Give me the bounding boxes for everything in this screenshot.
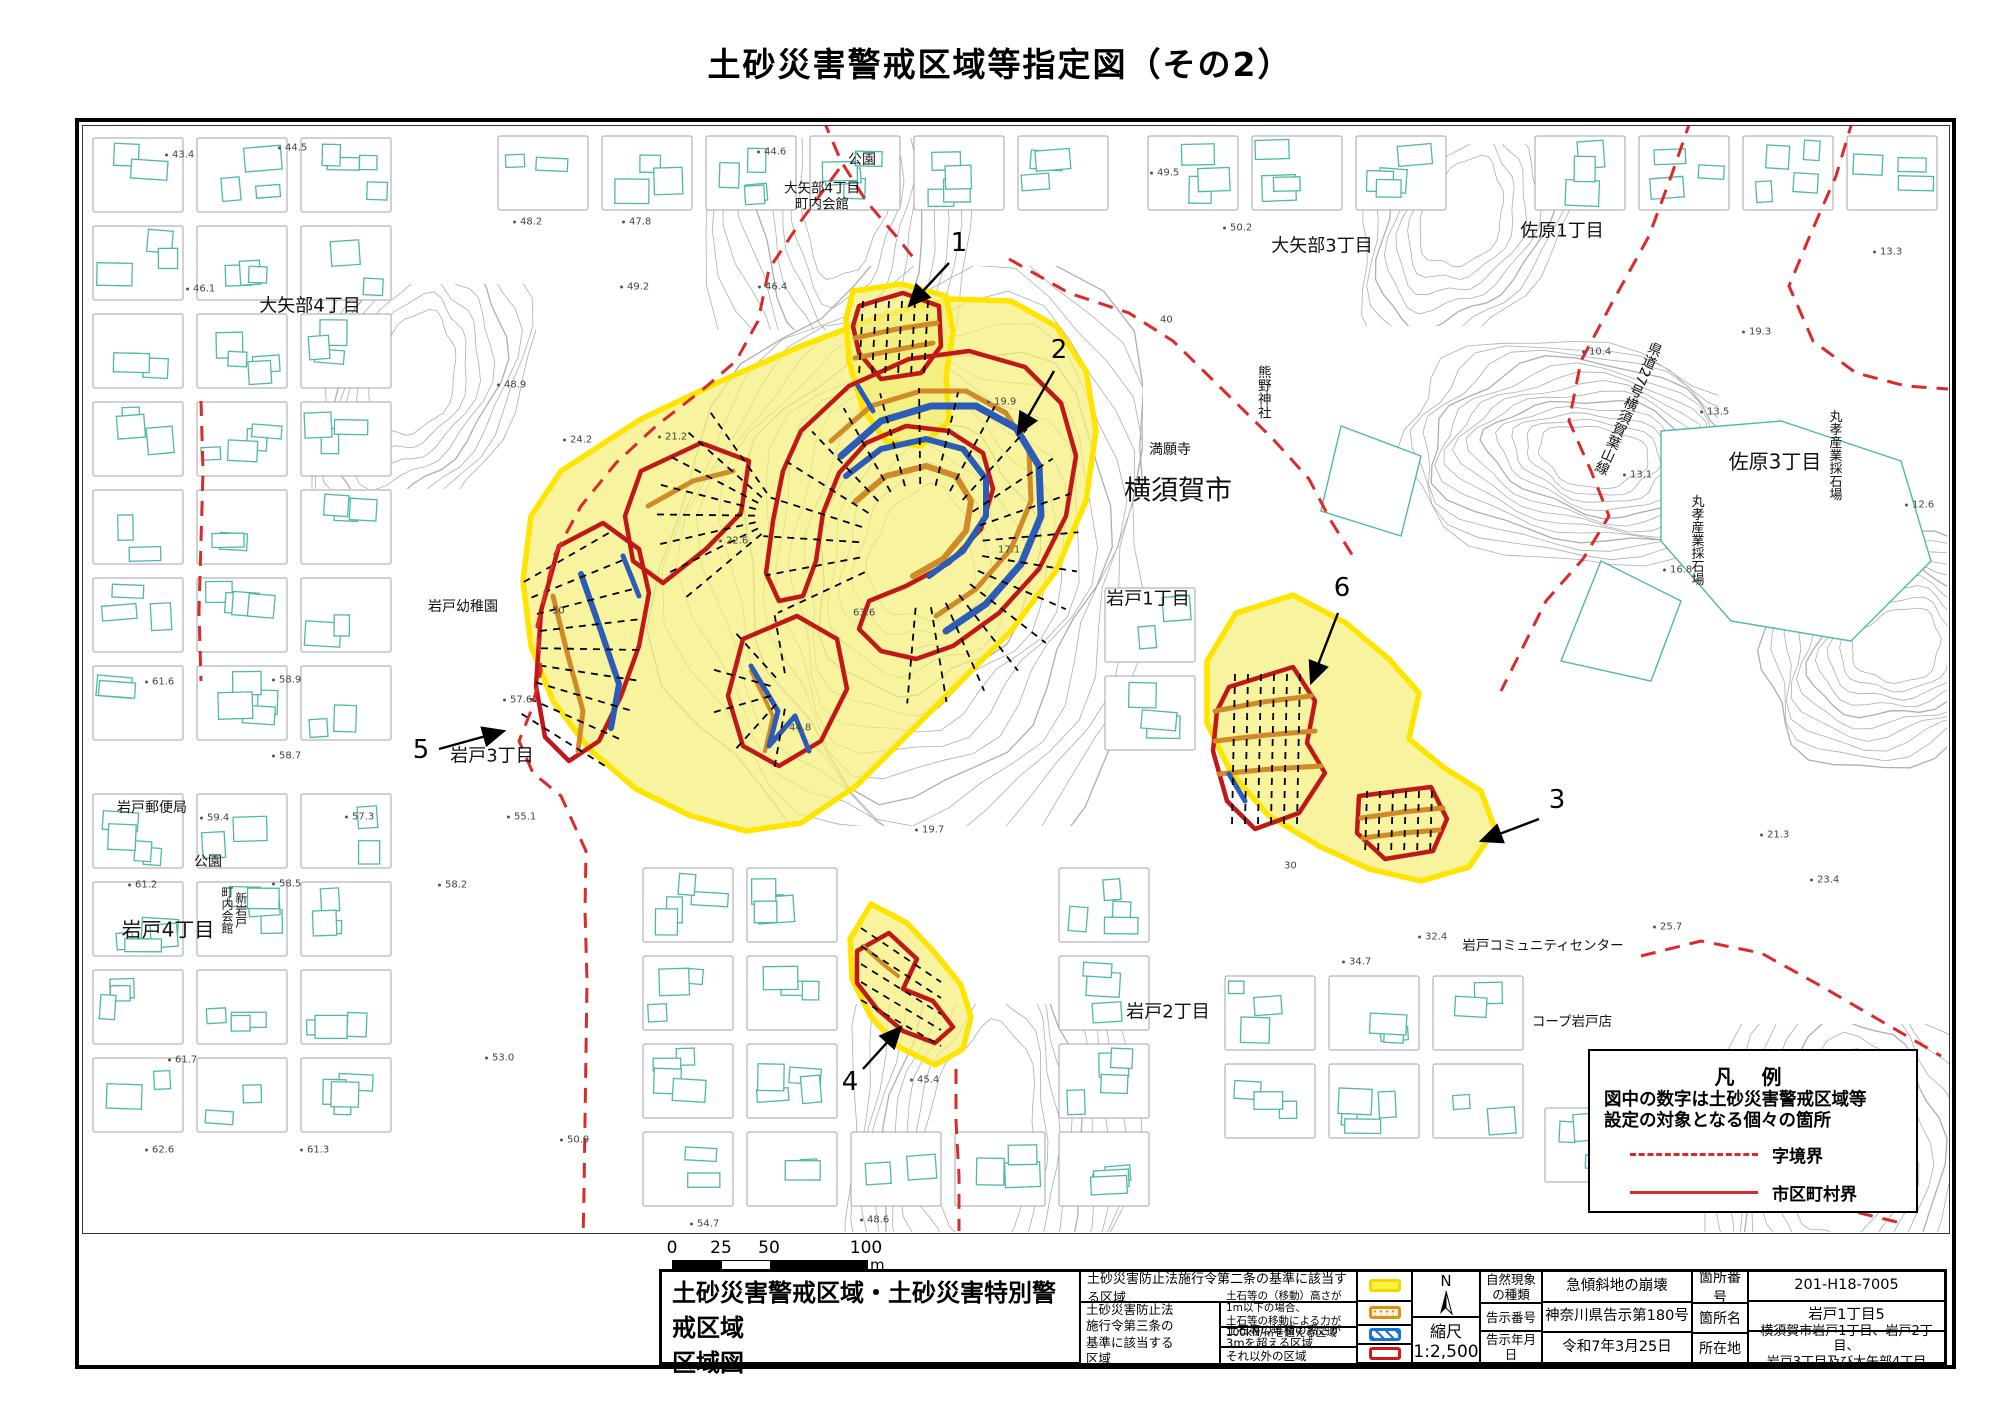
spot-elevation: 23.4 <box>1810 875 1839 886</box>
spot-elevation-value: 19.9 <box>994 397 1016 408</box>
spot-elevation: 50.9 <box>560 1135 589 1146</box>
scale-seg-black1 <box>673 1261 722 1269</box>
spot-elevation: 21.3 <box>1760 830 1789 841</box>
spot-elevation-value: 59.4 <box>207 813 229 824</box>
spot-elevation-value: 58.5 <box>279 879 301 890</box>
spot-elevation: 53.0 <box>485 1053 514 1064</box>
dashed-boundary-label: 字境界 <box>1772 1142 1823 1167</box>
spot-elevation: 10.4 <box>1582 347 1611 358</box>
spot-dot <box>622 220 625 223</box>
spot-elevation-value: 24.2 <box>570 435 592 446</box>
spot-elevation-value: 12.6 <box>1912 500 1934 511</box>
spot-elevation: 57.6 <box>503 695 532 706</box>
spot-elevation: 57.3 <box>345 812 374 823</box>
spot-elevation-value: 19.3 <box>1749 327 1771 338</box>
area-number-3: 3 <box>1549 785 1566 815</box>
spot-elevation-value: 32.4 <box>1425 932 1447 943</box>
spot-elevation: 13.1 <box>1623 470 1652 481</box>
spot-elevation-value: 57.6 <box>510 695 532 706</box>
spot-dot <box>272 754 275 757</box>
north-label: N <box>1440 1272 1451 1290</box>
map-label-kindergarten: 岩戸幼稚園 <box>428 599 498 615</box>
spot-elevation-value: 43.4 <box>172 150 194 161</box>
spot-elevation-value: 23.4 <box>1817 875 1839 886</box>
spot-elevation-value: 34.7 <box>1349 957 1371 968</box>
spot-elevation-value: 44.5 <box>285 143 307 154</box>
swatch-cell-blue <box>1357 1325 1412 1344</box>
dashed-boundary-key <box>1630 1153 1758 1156</box>
scale-label: 縮尺 <box>1430 1318 1462 1342</box>
spot-elevation: 55.1 <box>507 812 536 823</box>
map-label-kaikan-top: 大矢部4丁目 町内会館 <box>784 181 860 212</box>
spot-dot <box>1418 935 1421 938</box>
map-label-postoffice: 岩戸郵便局 <box>117 800 187 816</box>
spot-elevation: 48.6 <box>860 1215 889 1226</box>
map-label-sahara1: 佐原1丁目 <box>1520 222 1603 243</box>
spot-elevation-value: 10.4 <box>1589 347 1611 358</box>
info-label-phenomenon: 自然現象 の種類 <box>1480 1271 1542 1303</box>
spot-dot <box>1150 171 1153 174</box>
spot-elevation: 54.7 <box>690 1219 719 1230</box>
map-label-quarry-a: 丸孝産業採石場 <box>1826 410 1841 501</box>
spot-elevation-value: 25.7 <box>1660 922 1682 933</box>
spot-elevation: 58.2 <box>438 880 467 891</box>
spot-elevation: 58.5 <box>272 879 301 890</box>
north-compass-cell: N <box>1412 1271 1480 1317</box>
spot-elevation-value: 58.7 <box>279 751 301 762</box>
spot-elevation-value: 50.2 <box>1230 223 1252 234</box>
spot-elevation: 34.7 <box>1342 957 1371 968</box>
info-label-site-name: 箇所名 <box>1692 1303 1748 1333</box>
spot-elevation: 17.1 <box>998 545 1020 556</box>
spot-dot <box>1663 568 1666 571</box>
solid-boundary-key <box>1630 1191 1758 1194</box>
spot-elevation: 12.6 <box>1905 500 1934 511</box>
spot-dot <box>758 285 761 288</box>
scale-tick-50: 50 <box>758 1238 780 1258</box>
spot-dot <box>165 153 168 156</box>
spot-elevation: 44.6 <box>757 147 786 158</box>
deposit-height-swatch <box>1369 1328 1401 1341</box>
spot-dot <box>485 1056 488 1059</box>
legend-note-line1: 図中の数字は土砂災害警戒区域等 <box>1604 1090 1902 1111</box>
legend-panel: 凡 例 図中の数字は土砂災害警戒区域等 設定の対象となる個々の箇所 字境界 市区… <box>1588 1049 1918 1213</box>
page-title: 土砂災害警戒区域等指定図（その2） <box>0 38 2000 86</box>
swatch-cell-yellow <box>1357 1271 1412 1301</box>
spot-elevation-value: 53.0 <box>492 1053 514 1064</box>
map-label-community: 岩戸コミュニティセンター <box>1462 939 1623 955</box>
area-number-1: 1 <box>951 228 968 258</box>
spot-elevation: 50 <box>552 606 565 617</box>
spot-elevation: 61.2 <box>128 880 157 891</box>
spot-elevation-value: 30 <box>1284 861 1297 872</box>
spot-dot <box>497 383 500 386</box>
spot-dot <box>1873 250 1876 253</box>
spot-elevation: 49.5 <box>1150 168 1179 179</box>
spot-elevation: 44.5 <box>278 143 307 154</box>
spot-elevation: 47.8 <box>622 217 651 228</box>
spot-elevation-value: 13.3 <box>1880 247 1902 258</box>
spot-dot <box>1653 925 1656 928</box>
spot-dot <box>1742 330 1745 333</box>
spot-dot <box>300 1148 303 1151</box>
spot-dot <box>145 680 148 683</box>
spot-elevation: 48.2 <box>513 217 542 228</box>
spot-dot <box>272 882 275 885</box>
movement-force-swatch <box>1369 1306 1401 1319</box>
spot-dot <box>563 438 566 441</box>
area-number-6: 6 <box>1334 573 1351 603</box>
spot-elevation: 13.3 <box>1873 247 1902 258</box>
spot-elevation: 21.2 <box>658 432 687 443</box>
spot-elevation: 63.6 <box>853 608 875 619</box>
spot-dot <box>128 883 131 886</box>
spot-elevation: 62.6 <box>145 1145 174 1156</box>
spot-dot <box>1342 960 1345 963</box>
scale-value: 1:2,500 <box>1413 1342 1478 1362</box>
area-number-4: 4 <box>842 1067 859 1097</box>
spot-dot <box>1623 473 1626 476</box>
spot-elevation: 46.4 <box>758 282 787 293</box>
spot-elevation: 58.9 <box>272 675 301 686</box>
spot-elevation: 61.7 <box>168 1055 197 1066</box>
spot-dot <box>1810 878 1813 881</box>
info-label-site-no: 箇所番号 <box>1692 1271 1748 1303</box>
spot-elevation-value: 19.7 <box>922 825 944 836</box>
spot-elevation: 61.6 <box>145 677 174 688</box>
spot-elevation-value: 58.9 <box>279 675 301 686</box>
info-label-notice-no: 告示番号 <box>1480 1303 1542 1331</box>
scale-cell: 縮尺 1:2,500 <box>1412 1317 1480 1363</box>
scale-seg-white <box>722 1261 770 1269</box>
other-special-swatch <box>1369 1347 1401 1360</box>
spot-elevation: 25.7 <box>1653 922 1682 933</box>
spot-elevation: 48.9 <box>497 380 526 391</box>
spot-dot <box>987 400 990 403</box>
spot-elevation-value: 44.8 <box>789 723 811 734</box>
spot-elevation: 45.4 <box>910 1075 939 1086</box>
spot-elevation-value: 58.2 <box>445 880 467 891</box>
spot-dot <box>1905 503 1908 506</box>
spot-dot <box>690 1222 693 1225</box>
spot-dot <box>168 1058 171 1061</box>
spot-elevation-value: 44.6 <box>764 147 786 158</box>
spot-elevation: 19.3 <box>1742 327 1771 338</box>
legend-title: 凡 例 <box>1590 1061 1916 1090</box>
spot-dot <box>438 883 441 886</box>
spot-elevation: 40 <box>1160 315 1173 326</box>
spot-elevation: 19.9 <box>987 397 1016 408</box>
building-blocks <box>93 136 1937 1206</box>
spot-elevation: 58.7 <box>272 751 301 762</box>
spot-dot <box>658 435 661 438</box>
map-label-park-top: 公園 <box>848 152 876 168</box>
spot-dot <box>860 1218 863 1221</box>
solid-boundary-label: 市区町村界 <box>1772 1180 1857 1205</box>
map-label-kumano: 熊野神社 <box>1254 365 1270 419</box>
spot-dot <box>915 828 918 831</box>
spot-elevation-value: 61.6 <box>152 677 174 688</box>
spot-elevation-value: 49.5 <box>1157 168 1179 179</box>
sheet-title-cell: 土砂災害警戒区域・土砂災害特別警戒区域 区域図 <box>661 1271 1080 1363</box>
spot-elevation: 59.4 <box>200 813 229 824</box>
spot-elevation-value: 21.2 <box>665 432 687 443</box>
map-label-oyabe4: 大矢部4丁目 <box>259 297 360 318</box>
spot-elevation-value: 61.2 <box>135 880 157 891</box>
legend-note-line2: 設定の対象となる個々の箇所 <box>1604 1111 1902 1132</box>
spot-elevation: 46.1 <box>186 284 215 295</box>
spot-elevation-value: 17.1 <box>998 545 1020 556</box>
article3-header: 土砂災害防止法 施行令第三条の 基準に該当する 区域 <box>1080 1302 1220 1367</box>
spot-elevation-value: 50.9 <box>567 1135 589 1146</box>
spot-elevation-value: 63.6 <box>853 608 875 619</box>
title-block-table: 土砂災害警戒区域・土砂災害特別警戒区域 区域図 土砂災害防止法施行令第二条の基準… <box>659 1269 1947 1365</box>
spot-elevation-value: 48.2 <box>520 217 542 228</box>
area-number-2: 2 <box>1051 335 1068 365</box>
spot-elevation-value: 21.3 <box>1767 830 1789 841</box>
spot-dot <box>1700 410 1703 413</box>
spot-dot <box>278 146 281 149</box>
article3-row3-label: それ以外の区域 <box>1220 1347 1357 1367</box>
scale-tick-0: 0 <box>667 1238 678 1258</box>
map-label-iwato4: 岩戸4丁目 <box>122 919 215 942</box>
map-label-yokosuka: 横須賀市 <box>1124 475 1232 506</box>
map-label-quarry-b: 丸孝産業採石場 <box>1688 495 1703 586</box>
spot-elevation-value: 13.1 <box>1630 470 1652 481</box>
info-value-site-no: 201-H18-7005 <box>1748 1271 1945 1301</box>
info-value-location: 横須賀市岩戸1丁目、岩戸2丁目、 岩戸3丁目及び大矢部4丁目 <box>1748 1331 1945 1363</box>
spot-elevation-value: 50 <box>552 606 565 617</box>
spot-dot <box>1760 833 1763 836</box>
map-label-shin-iwato: 新岩戸 町内会館 <box>219 886 247 934</box>
spot-elevation: 19.7 <box>915 825 944 836</box>
swatch-cell-red <box>1357 1344 1412 1363</box>
spot-elevation-value: 48.9 <box>504 380 526 391</box>
spot-dot <box>272 678 275 681</box>
article3-row2-label: 土石等の堆積の高さが3mを超える区域 <box>1220 1327 1357 1347</box>
spot-elevation-value: 47.8 <box>629 217 651 228</box>
spot-dot <box>1582 350 1585 353</box>
warning-area-swatch <box>1369 1279 1401 1292</box>
info-value-notice-date: 令和7年3月25日 <box>1542 1332 1692 1363</box>
spot-elevation-value: 49.2 <box>627 282 649 293</box>
spot-elevation-value: 55.1 <box>514 812 536 823</box>
spot-elevation: 43.4 <box>165 150 194 161</box>
spot-dot <box>507 815 510 818</box>
info-value-phenomenon: 急傾斜地の崩壊 <box>1542 1271 1692 1302</box>
map-label-mangan: 満願寺 <box>1149 442 1191 458</box>
spot-dot <box>345 815 348 818</box>
spot-elevation: 30 <box>1284 861 1297 872</box>
spot-dot <box>513 220 516 223</box>
north-arrow-icon <box>1436 1290 1456 1316</box>
spot-dot <box>719 539 722 542</box>
spot-elevation-value: 46.4 <box>765 282 787 293</box>
spot-dot <box>620 285 623 288</box>
spot-dot <box>560 1138 563 1141</box>
spot-elevation: 49.2 <box>620 282 649 293</box>
spot-elevation-value: 57.3 <box>352 812 374 823</box>
spot-dot <box>186 287 189 290</box>
spot-elevation-value: 46.1 <box>193 284 215 295</box>
map-label-park-left: 公園 <box>194 854 222 870</box>
spot-elevation: 32.4 <box>1418 932 1447 943</box>
map-sheet: 土砂災害警戒区域等指定図（その2） 大矢部4丁目公園大矢部4丁目 町内会館大矢部… <box>0 0 2000 1414</box>
map-label-iwato3: 岩戸3丁目 <box>450 747 533 768</box>
swatch-cell-orange <box>1357 1301 1412 1325</box>
spot-elevation-value: 45.4 <box>917 1075 939 1086</box>
spot-elevation: 44.8 <box>782 723 811 734</box>
scale-tick-25: 25 <box>710 1238 732 1258</box>
map-label-iwato1: 岩戸1丁目 <box>1106 590 1189 611</box>
spot-elevation-value: 54.7 <box>697 1219 719 1230</box>
spot-dot <box>782 726 785 729</box>
spot-elevation: 61.3 <box>300 1145 329 1156</box>
spot-dot <box>503 698 506 701</box>
spot-elevation-value: 61.7 <box>175 1055 197 1066</box>
scale-tick-100: 100 <box>850 1238 882 1258</box>
spot-elevation-value: 13.5 <box>1707 407 1729 418</box>
info-label-notice-date: 告示年月日 <box>1480 1331 1542 1363</box>
spot-dot <box>145 1148 148 1151</box>
spot-dot <box>1223 226 1226 229</box>
spot-elevation-value: 40 <box>1160 315 1173 326</box>
spot-elevation-value: 62.6 <box>152 1145 174 1156</box>
map-label-coop: コープ岩戸店 <box>1532 1015 1612 1031</box>
spot-dot <box>200 816 203 819</box>
map-label-sahara3: 佐原3丁目 <box>1729 451 1822 474</box>
info-label-location: 所在地 <box>1692 1333 1748 1363</box>
spot-elevation: 24.2 <box>563 435 592 446</box>
map-label-iwato2: 岩戸2丁目 <box>1126 1003 1209 1024</box>
spot-elevation: 13.5 <box>1700 407 1729 418</box>
area-number-5: 5 <box>413 735 430 765</box>
map-label-oyabe3: 大矢部3丁目 <box>1271 237 1372 258</box>
spot-elevation-value: 61.3 <box>307 1145 329 1156</box>
spot-elevation: 22.6 <box>719 536 748 547</box>
area-arrow-4 <box>863 1027 901 1069</box>
info-value-notice-no: 神奈川県告示第180号 <box>1542 1302 1692 1333</box>
spot-elevation: 50.2 <box>1223 223 1252 234</box>
spot-dot <box>910 1078 913 1081</box>
spot-dot <box>757 150 760 153</box>
spot-elevation-value: 48.6 <box>867 1215 889 1226</box>
scale-seg-black2 <box>770 1261 867 1269</box>
spot-elevation-value: 22.6 <box>726 536 748 547</box>
